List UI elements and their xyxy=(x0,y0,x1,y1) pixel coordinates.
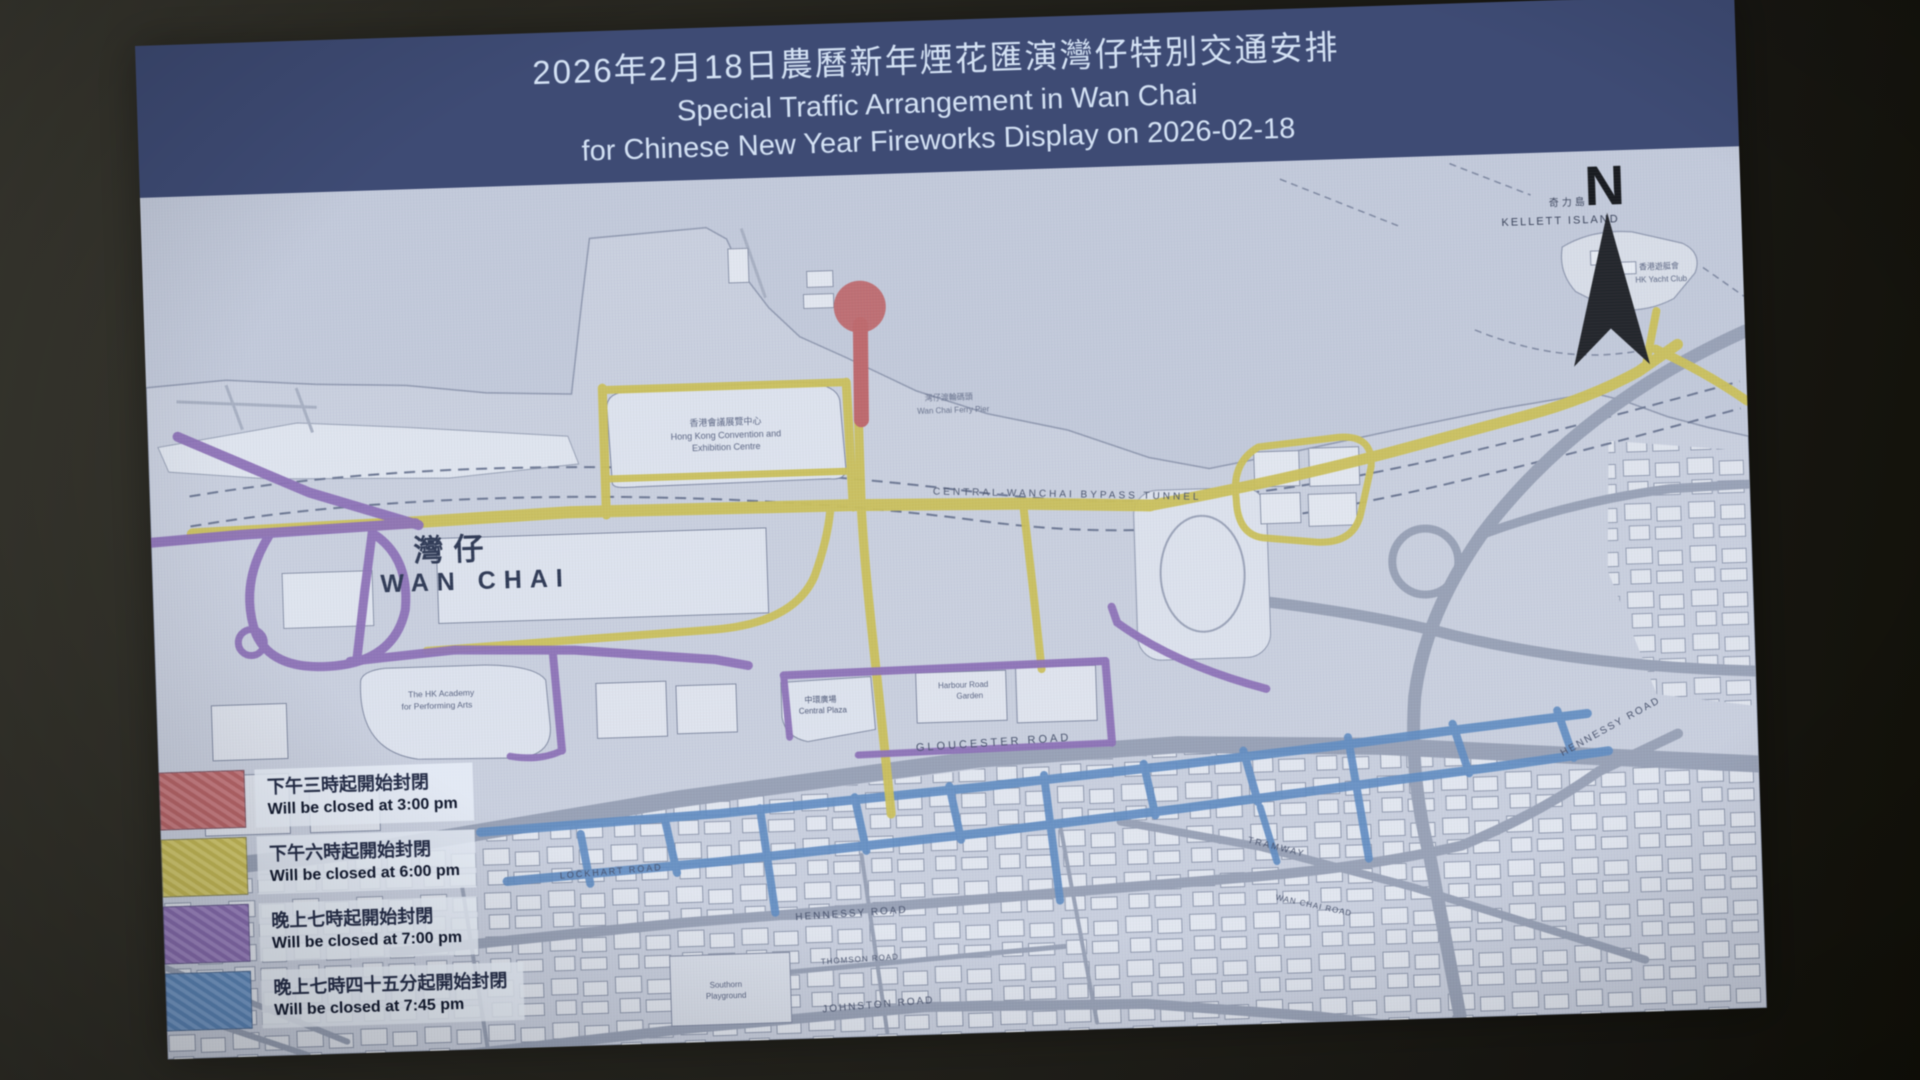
yacht-club-label-en: HK Yacht Club xyxy=(1635,274,1688,285)
legend-swatch-yellow xyxy=(161,837,249,898)
north-label: N xyxy=(1583,153,1625,217)
yacht-club-label-zh: 香港遊艇會 xyxy=(1639,260,1679,271)
slide: 2026年2月18日農曆新年煙花匯演灣仔特別交通安排 Special Traff… xyxy=(135,0,1767,1059)
legend-row-6pm: 下午六時起開始封閉 Will be closed at 6:00 pm xyxy=(161,828,521,898)
legend-swatch-blue xyxy=(165,971,253,1032)
southorn-label-2: Playground xyxy=(706,991,747,1001)
apa-building xyxy=(360,663,551,763)
projection-photo: 2026年2月18日農曆新年煙花匯演灣仔特別交通安排 Special Traff… xyxy=(0,0,1920,1080)
traffic-map: 灣仔 WAN CHAI 香港會議展覽中心 Hong Kong Conventio… xyxy=(140,146,1767,1059)
southorn-label-1: Southorn xyxy=(709,980,742,990)
legend-row-7pm: 晚上七時起開始封閉 Will be closed at 7:00 pm xyxy=(163,895,523,965)
hkcec-label-zh: 香港會議展覽中心 xyxy=(689,415,761,428)
sports-ground xyxy=(1133,487,1271,661)
pier-structure xyxy=(728,248,749,283)
legend: 下午三時起開始封閉 Will be closed at 3:00 pm 下午六時… xyxy=(158,761,524,1031)
kellett-label-zh: 奇力島 xyxy=(1549,195,1588,209)
legend-row-3pm: 下午三時起開始封閉 Will be closed at 3:00 pm xyxy=(158,761,518,831)
harbour-garden-label-2: Garden xyxy=(956,691,983,701)
ferry-pier-label-zh: 灣仔渡輪碼頭 xyxy=(925,391,973,403)
legend-swatch-red xyxy=(158,770,246,831)
legend-row-745pm: 晚上七時四十五分起開始封閉 Will be closed at 7:45 pm xyxy=(165,962,525,1032)
central-plaza-label-en: Central Plaza xyxy=(799,705,848,716)
harbour-garden-label-1: Harbour Road xyxy=(938,680,989,691)
central-plaza-label-zh: 中環廣場 xyxy=(804,694,836,705)
wanchai-label-zh: 灣仔 xyxy=(413,533,494,569)
legend-swatch-purple xyxy=(163,904,251,965)
